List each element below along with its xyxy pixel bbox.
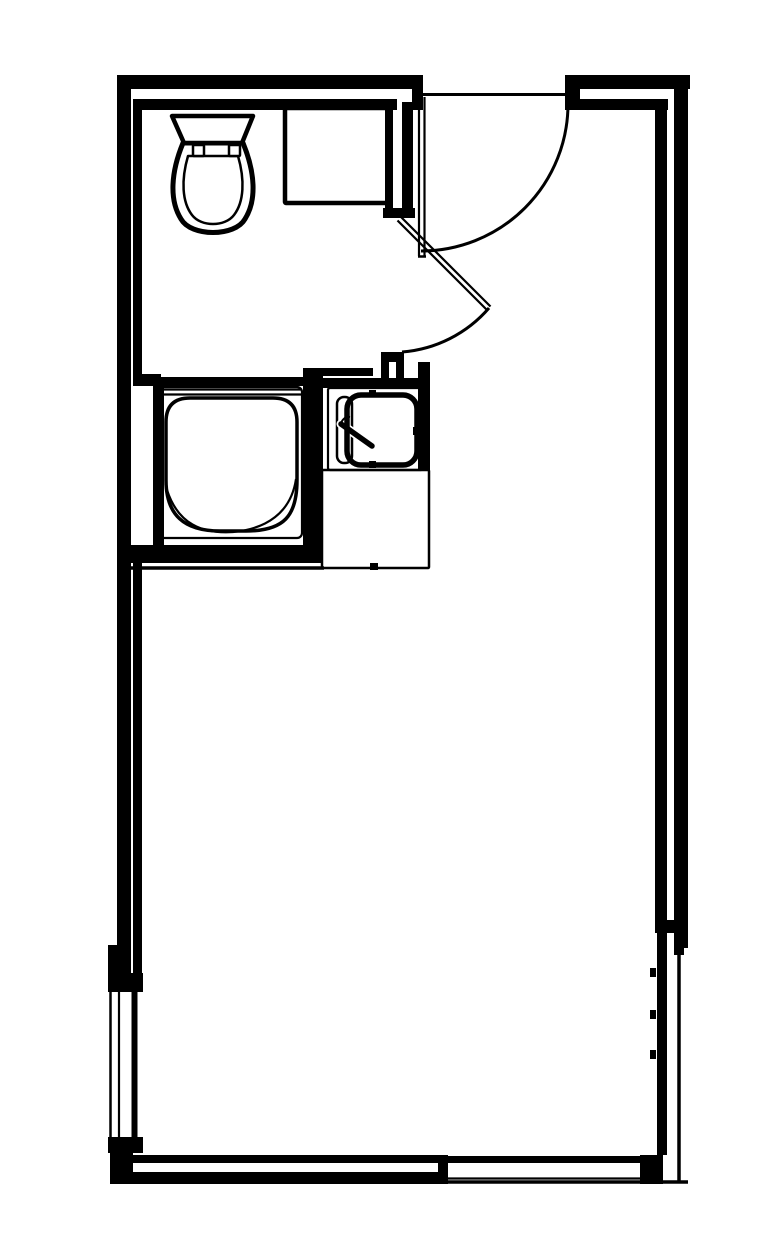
toilet-seat-hinge-right (229, 145, 240, 156)
right-wall-tick-2 (650, 1010, 656, 1019)
bathroom-door-leaf-line-b (401, 217, 491, 307)
entry-door-left-jamb (412, 89, 423, 110)
wall-top-inner-right (577, 99, 668, 110)
shower-right-wall (303, 368, 323, 563)
vanity-cabinet-outline (285, 108, 390, 203)
door-stub-left-leg (381, 360, 389, 379)
wall-bottom-inner (133, 1155, 438, 1163)
sink-upper-wall-band (303, 368, 373, 376)
toilet-tank (172, 116, 253, 143)
floor-plan-page (0, 0, 783, 1254)
entry-door-swing-arc (421, 104, 568, 251)
below-sink-counter-outline (322, 470, 429, 568)
wall-right-inner-lower (657, 933, 667, 1155)
wall-left-inner-upper (133, 99, 142, 385)
interior-wall-end-cap (383, 208, 415, 218)
door-stub-right-leg (396, 360, 404, 379)
wall-top-outer-right (565, 75, 690, 89)
interior-wall-east-band (402, 102, 413, 217)
shower-bottom-wall (130, 545, 322, 563)
right-wall-tick-1 (650, 968, 656, 977)
wall-left-inner-lower (133, 553, 142, 973)
bottom-right-corner-post (640, 1155, 663, 1184)
right-wall-tick-3 (650, 1050, 656, 1059)
left-window-top-jamb (108, 973, 143, 992)
toilet-seat-hinge-left (193, 145, 204, 156)
shower-pan-body (166, 398, 297, 531)
bathroom-door-leaf-line-a (398, 221, 488, 311)
shower-top-wall (161, 377, 305, 386)
wall-top-outer-left (117, 75, 423, 89)
bottom-window-left-jamb (438, 1155, 448, 1184)
wall-right-outer (674, 75, 688, 948)
floor-plan (0, 0, 783, 1254)
wall-bottom-outer (110, 1172, 448, 1184)
sink-basin-outline (347, 395, 417, 465)
wall-left-outer (117, 75, 131, 948)
wall-right-inner-upper (655, 99, 667, 920)
sink-lower-wall-band (303, 378, 430, 388)
bottom-window-inner-line (448, 1156, 640, 1163)
bathroom-door-swing-arc (402, 308, 489, 352)
